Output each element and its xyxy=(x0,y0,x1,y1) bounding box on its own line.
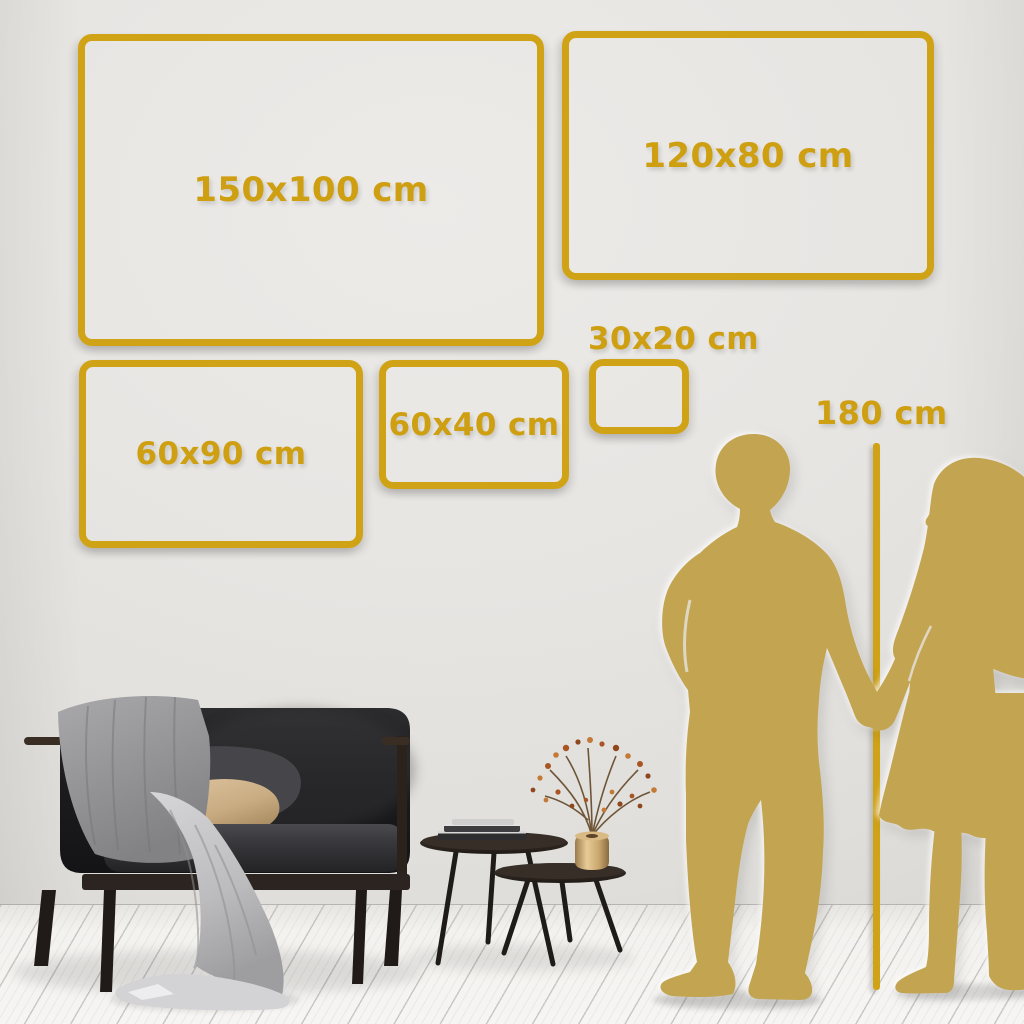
room-scene xyxy=(0,0,1024,1024)
woman-silhouette xyxy=(865,458,1024,994)
coffee-table-large xyxy=(420,819,568,964)
coffee-table-small xyxy=(494,863,626,953)
couple-silhouettes xyxy=(660,434,1024,1000)
stacked-books xyxy=(438,819,526,840)
branch-stems xyxy=(545,748,650,836)
brass-vase-opening xyxy=(586,834,598,838)
woman-skirt xyxy=(879,693,1024,846)
sofa-wood-peg-right xyxy=(382,737,410,745)
man-silhouette xyxy=(660,434,885,1000)
woman-leg-left xyxy=(895,825,961,993)
sofa-wood-post-right xyxy=(397,736,407,874)
branch-berries xyxy=(531,737,657,812)
size-guide-scene: 150x100 cm 120x80 cm 60x90 cm 60x40 cm 3… xyxy=(0,0,1024,1024)
coffee-table-small-legs xyxy=(504,880,620,953)
woman-leg-right xyxy=(985,829,1024,990)
